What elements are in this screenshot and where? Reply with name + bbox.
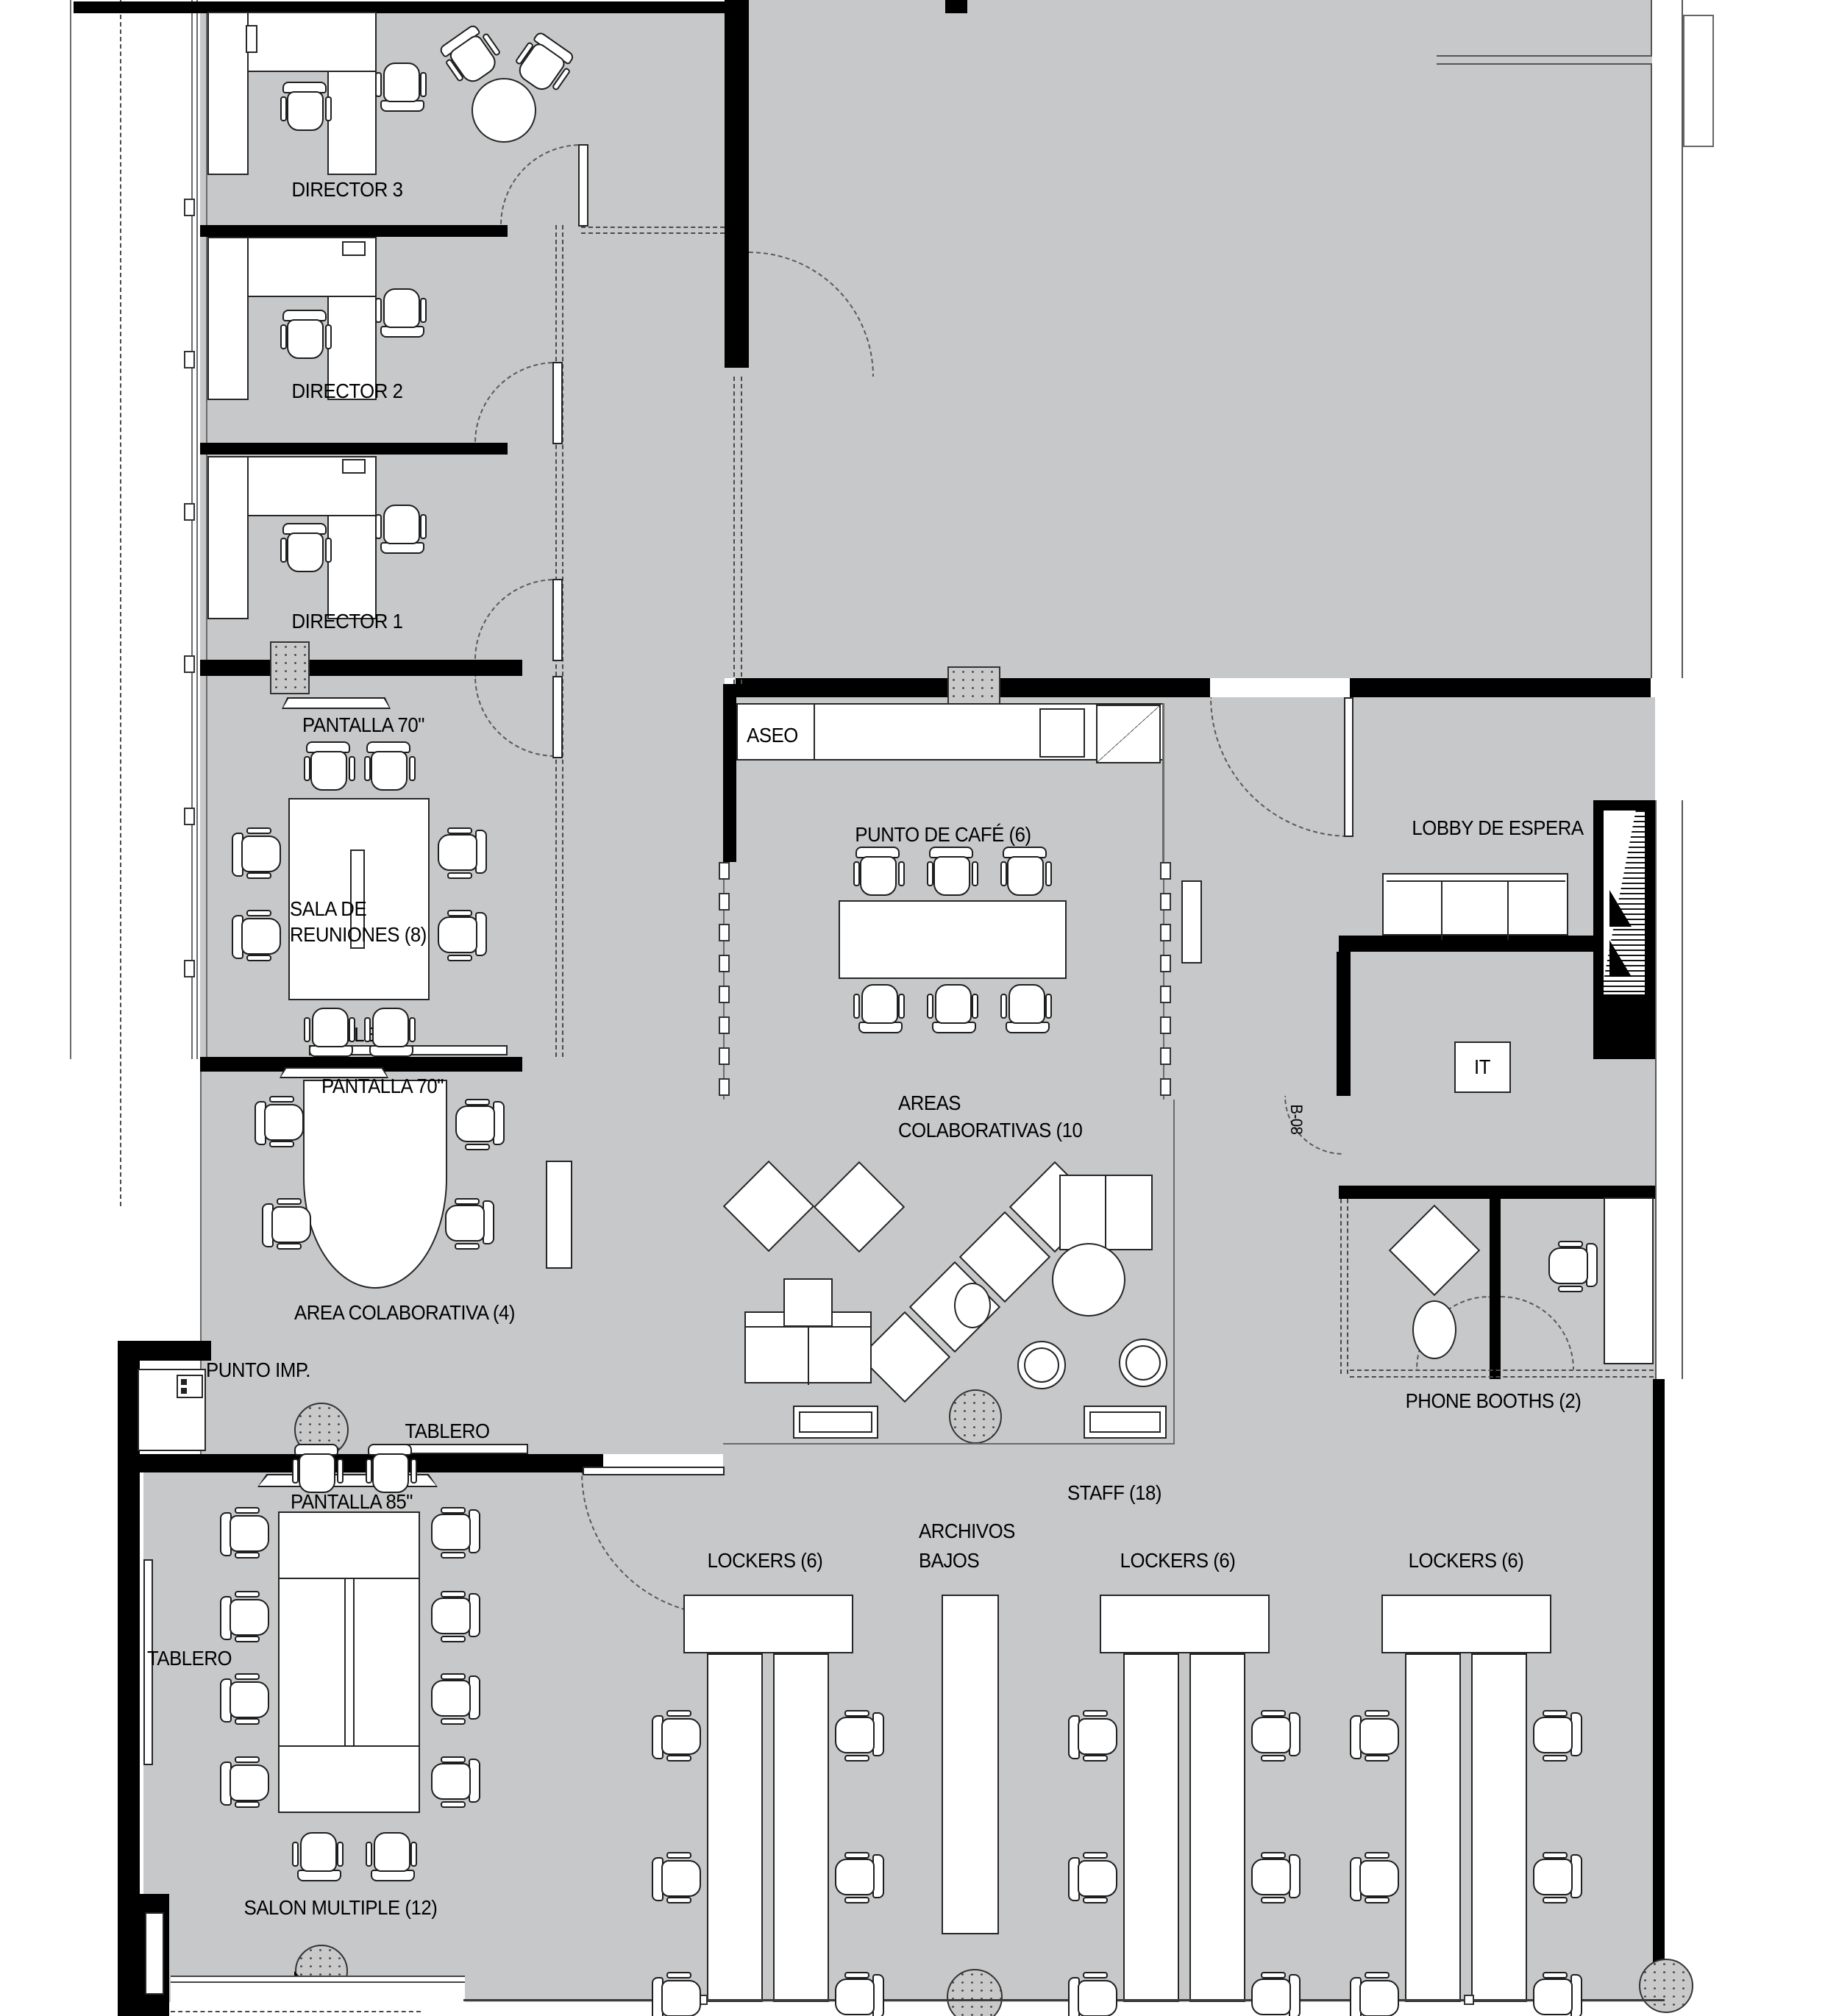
chair-arm-right <box>409 756 416 781</box>
chair-arm-left <box>1045 994 1052 1019</box>
chair-arm-right <box>349 756 355 781</box>
label-lobby: LOBBY DE ESPERA <box>1412 816 1583 840</box>
chair-seat <box>1533 1717 1573 1753</box>
slab-edge-south <box>463 1999 1665 2001</box>
chair-arm-right <box>325 96 332 121</box>
aseo-divider <box>814 705 815 759</box>
chair-seat <box>1251 1717 1291 1753</box>
chair-arm-right <box>927 994 933 1019</box>
chair-seat <box>383 63 420 102</box>
chair-seat <box>835 1978 875 2015</box>
desk-col-1b <box>773 1653 829 2002</box>
sofa-west-cushion-line <box>808 1326 809 1385</box>
label-areas-line1: AREAS <box>898 1091 961 1115</box>
bench-1-inner <box>799 1411 872 1433</box>
desk-col-3a <box>1405 1653 1461 2002</box>
chair-arm-left <box>366 1458 372 1483</box>
chair-seat <box>445 1205 485 1242</box>
chair-seat <box>1359 1980 1399 2016</box>
label-lockers-2: LOCKERS (6) <box>1120 1549 1236 1572</box>
chair-arm-right <box>235 1591 260 1598</box>
chair-seat <box>431 1763 471 1800</box>
chair-seat <box>1078 1860 1117 1897</box>
threshold-sw <box>171 1976 465 1983</box>
chair-seat <box>431 1680 471 1717</box>
office-chair-icon <box>377 57 425 112</box>
office-chair-icon <box>1350 1853 1404 1902</box>
chair-seat <box>438 834 477 871</box>
office-chair-icon <box>366 741 414 796</box>
chair-arm-left <box>1543 1852 1568 1859</box>
chair-arm-right <box>1365 1710 1390 1717</box>
floor-plan: B-08 DIRECTOR 3 DIRECTOR 2 DIRECTOR 1 PA… <box>0 0 1825 2016</box>
glass-d3-front <box>581 227 725 228</box>
window-mullion-tick <box>719 1078 730 1096</box>
office-chair-icon <box>1543 1242 1598 1291</box>
window-mullion-tick <box>719 862 730 880</box>
window-mullion-tick <box>1160 862 1171 880</box>
office-chair-icon <box>426 1509 480 1557</box>
chair-arm-right <box>441 1552 466 1559</box>
office-chair-icon <box>1002 847 1050 901</box>
door-leaf-director1 <box>552 579 563 661</box>
chair-arm-left <box>465 1099 490 1105</box>
monitor-director3-icon <box>246 25 257 53</box>
glass-corridor-east-a <box>733 377 735 684</box>
door-leaf-lobby-main <box>1344 697 1353 837</box>
stair-treads <box>1604 811 1645 994</box>
screen-70-sala <box>282 697 391 709</box>
office-chair-icon <box>450 1100 505 1149</box>
desk-director1-left <box>207 456 249 619</box>
office-chair-icon <box>855 979 903 1033</box>
chair-seat <box>661 1860 701 1897</box>
chair-arm-right <box>235 1756 260 1763</box>
chair-arm-left <box>441 1591 466 1598</box>
desk-col-3b <box>1471 1653 1527 2002</box>
sofa-lobby-backline <box>1387 880 1565 882</box>
office-chair-icon <box>928 847 977 901</box>
chair-arm-right <box>447 872 472 879</box>
ottoman-ring-2-inner <box>1125 1345 1161 1381</box>
office-chair-icon <box>830 1973 884 2016</box>
chair-arm-left <box>441 1756 466 1763</box>
chair-arm-left <box>1543 1972 1568 1978</box>
chair-arm-left <box>666 1897 691 1903</box>
chair-arm-right <box>441 1636 466 1642</box>
chair-seat <box>860 856 897 896</box>
chair-seat <box>372 1453 409 1493</box>
chair-arm-left <box>235 1636 260 1642</box>
office-chair-icon <box>1350 1973 1404 2016</box>
chair-seat <box>431 1514 471 1550</box>
chair-seat <box>455 1105 495 1142</box>
chair-seat <box>661 1980 701 2016</box>
label-lockers-3: LOCKERS (6) <box>1409 1549 1524 1572</box>
office-chair-icon <box>232 911 286 960</box>
chair-arm-left <box>1083 1755 1108 1762</box>
table-cafe <box>839 900 1067 979</box>
desk-director3-right <box>327 71 377 175</box>
ottoman-ring-1-inner <box>1024 1347 1059 1383</box>
window-mullion-tick <box>1160 1047 1171 1065</box>
chair-arm-right <box>246 827 271 834</box>
label-tablero-salon: TABLERO <box>147 1647 232 1670</box>
chair-arm-left <box>280 538 287 563</box>
office-chair-icon <box>1528 1712 1582 1760</box>
exterior-box-ne <box>1683 15 1714 147</box>
aseo-east-wall <box>1162 703 1164 862</box>
chair-arm-left <box>1365 1755 1390 1762</box>
chair-arm-right <box>666 1710 691 1717</box>
label-areas-line2: COLABORATIVAS (10 <box>898 1119 1082 1142</box>
window-mullion-tick <box>719 1016 730 1034</box>
chair-seat <box>230 1764 269 1801</box>
window-mullion-tick <box>719 893 730 911</box>
label-aseo: ASEO <box>747 724 798 747</box>
chair-arm-right <box>844 1755 869 1762</box>
door-leaf-director3 <box>578 144 588 227</box>
exterior-line-west <box>70 0 71 1059</box>
chair-seat <box>1533 1859 1573 1895</box>
chair-arm-left <box>364 756 371 781</box>
chair-arm-left <box>927 861 933 886</box>
office-chair-icon <box>262 1200 316 1248</box>
chair-arm-right <box>1543 1897 1568 1903</box>
chair-seat <box>835 1859 875 1895</box>
chair-seat <box>933 856 970 896</box>
window-mullion-tick <box>184 503 195 521</box>
chair-seat <box>287 533 324 572</box>
table-salon-line1 <box>280 1578 419 1579</box>
chair-arm-left <box>1000 861 1007 886</box>
desk-col-1a <box>707 1653 763 2002</box>
chair-arm-right <box>269 1096 294 1103</box>
desk-director3-left <box>207 12 249 175</box>
chair-arm-right <box>844 1897 869 1903</box>
door-leaf-area-colab <box>546 1161 572 1269</box>
office-chair-icon <box>1068 1853 1123 1902</box>
wall-east-low <box>1653 1379 1665 2002</box>
desk-col-2a <box>1123 1653 1179 2002</box>
chair-seat <box>383 288 420 328</box>
sw-window <box>145 1912 164 1995</box>
chair-arm-right <box>455 1243 480 1250</box>
sofa-lobby-line1 <box>1441 880 1442 940</box>
window-mullion-tick <box>184 199 195 216</box>
chair-arm-right <box>441 1801 466 1808</box>
chair-arm-left <box>420 72 427 97</box>
window-mullion-tick <box>184 960 195 977</box>
chair-seat <box>287 319 324 359</box>
wall-d1-sala <box>200 660 522 676</box>
chair-seat <box>300 1832 337 1872</box>
office-chair-icon <box>294 1827 342 1881</box>
window-mullion-tick <box>1160 1016 1171 1034</box>
chair-arm-left <box>898 994 905 1019</box>
office-chair-icon <box>1350 1712 1404 1760</box>
table-salon-divider-b <box>353 1579 355 1747</box>
printer-detail <box>181 1379 187 1385</box>
window-mullion-tick <box>1160 955 1171 972</box>
side-table-oval <box>954 1283 991 1328</box>
chair-arm-right <box>1083 1972 1108 1978</box>
table-salon <box>278 1511 420 1813</box>
chair-arm-left <box>1261 1710 1286 1717</box>
exterior-ledge <box>1437 55 1652 65</box>
office-chair-icon <box>830 1853 884 1902</box>
chair-arm-left <box>337 1842 344 1867</box>
chair-seat <box>835 1717 875 1753</box>
label-it: IT <box>1474 1055 1490 1079</box>
office-chair-icon <box>232 829 286 877</box>
chair-seat <box>383 505 420 544</box>
locker-bank-2 <box>1100 1595 1270 1653</box>
desk-booth2 <box>1604 1197 1654 1364</box>
office-chair-icon <box>282 523 330 577</box>
wall-lobby-L-h <box>1339 936 1604 952</box>
chair-arm-right <box>375 72 382 97</box>
glass-booth-south-a <box>1350 1369 1654 1371</box>
office-chair-icon <box>366 1002 414 1057</box>
chair-arm-right <box>375 514 382 539</box>
chair-seat <box>264 1104 304 1141</box>
glass-booth-south-b <box>1350 1376 1654 1378</box>
office-chair-icon <box>377 499 425 554</box>
label-lockers-1: LOCKERS (6) <box>708 1549 823 1572</box>
chair-arm-left <box>420 514 427 539</box>
chair-seat <box>230 1515 269 1552</box>
chair-seat <box>1359 1860 1399 1897</box>
window-mullion-tick <box>719 986 730 1003</box>
chair-arm-right <box>304 1017 310 1042</box>
chair-arm-left <box>447 910 472 916</box>
lounge-south-line <box>723 1443 1175 1445</box>
exterior-strip-east-mid <box>1655 800 1683 1379</box>
chair-arm-right <box>366 1842 372 1867</box>
table-salon-divider-a <box>344 1579 346 1747</box>
office-chair-icon <box>220 1509 274 1557</box>
chair-arm-left <box>666 1755 691 1762</box>
chair-arm-right <box>325 324 332 349</box>
chair-arm-left <box>280 324 287 349</box>
column-d1 <box>270 641 310 694</box>
window-mullion-tick <box>1160 1078 1171 1096</box>
label-staff: STAFF (18) <box>1067 1481 1161 1505</box>
chair-seat <box>1007 856 1044 896</box>
wall-lobby-L-v <box>1337 952 1351 1096</box>
chair-arm-right <box>1543 1755 1568 1762</box>
door-leaf-sala <box>552 676 563 758</box>
chair-arm-right <box>1261 1897 1286 1903</box>
wall-top-stub <box>945 0 967 13</box>
window-mullion-tick <box>1160 893 1171 911</box>
sofa-east-cushion-line <box>1105 1176 1106 1249</box>
office-chair-icon <box>830 1712 884 1760</box>
ottoman-ring-2 <box>1119 1339 1167 1387</box>
printer-icon <box>177 1375 203 1398</box>
office-chair-icon <box>652 1853 706 1902</box>
chair-arm-right <box>666 1852 691 1859</box>
chair-seat <box>312 1008 349 1047</box>
window-mullion-tick <box>719 1047 730 1065</box>
label-pantalla70-sala: PANTALLA 70" <box>302 713 424 737</box>
window-mullion-tick <box>184 655 195 673</box>
office-chair-icon <box>1528 1973 1582 2016</box>
chair-arm-right <box>1261 1755 1286 1762</box>
label-archivos-line2: BAJOS <box>919 1549 979 1572</box>
window-mullion-tick <box>184 351 195 368</box>
chair-arm-left <box>235 1718 260 1725</box>
label-archivos-line1: ARCHIVOS <box>919 1520 1015 1543</box>
wall-east-corridor <box>725 0 749 368</box>
chair-arm-right <box>292 1842 299 1867</box>
chair-arm-right <box>1045 861 1052 886</box>
label-punto-cafe: PUNTO DE CAFÉ (6) <box>855 823 1031 847</box>
chair-arm-left <box>269 1141 294 1147</box>
desk-director1-right <box>327 515 377 619</box>
chair-arm-right <box>337 1458 344 1483</box>
office-chair-icon <box>220 1675 274 1723</box>
bench-2-inner <box>1089 1411 1161 1433</box>
chair-arm-right <box>1365 1852 1390 1859</box>
office-chair-icon <box>433 911 487 960</box>
chair-seat <box>1359 1718 1399 1755</box>
aseo-shower <box>1096 705 1161 763</box>
chair-arm-right <box>1558 1286 1583 1292</box>
cafe-east-cabinet <box>1181 880 1202 964</box>
office-chair-icon <box>1068 1712 1123 1760</box>
office-chair-icon <box>652 1712 706 1760</box>
desk-director2-left <box>207 237 249 400</box>
label-punto-imp: PUNTO IMP. <box>206 1358 310 1382</box>
window-mullion-tick <box>719 924 730 941</box>
office-chair-icon <box>220 1592 274 1641</box>
office-chair-icon <box>652 1973 706 2016</box>
chair-arm-left <box>1558 1241 1583 1247</box>
chair-seat <box>371 751 408 791</box>
office-chair-icon <box>1246 1973 1301 2016</box>
label-director3: DIRECTOR 3 <box>292 178 403 202</box>
chair-arm-left <box>349 1017 355 1042</box>
label-sala-line1: SALA DE <box>290 897 366 921</box>
label-director1: DIRECTOR 1 <box>292 610 403 633</box>
chair-arm-right <box>441 1718 466 1725</box>
bench-1 <box>793 1406 878 1439</box>
office-chair-icon <box>305 1002 354 1057</box>
chair-arm-left <box>447 827 472 834</box>
office-chair-icon <box>426 1592 480 1641</box>
chair-arm-left <box>1083 1897 1108 1903</box>
sofa-lobby-line2 <box>1507 880 1509 940</box>
column-lounge <box>949 1389 1002 1444</box>
window-mullion-tick <box>1160 986 1171 1003</box>
office-chair-icon <box>433 829 487 877</box>
chair-arm-left <box>235 1801 260 1808</box>
office-chair-icon <box>1068 1973 1123 2016</box>
table-salon-line2 <box>280 1745 419 1747</box>
label-sala-line2: REUNIONES (8) <box>290 923 427 947</box>
office-chair-icon <box>1528 1853 1582 1902</box>
door-leaf-director2 <box>552 362 563 444</box>
glass-d3-front-b <box>581 232 725 234</box>
chair-arm-left <box>235 1552 260 1559</box>
glass-booth-west-a <box>1340 1199 1342 1374</box>
office-chair-icon <box>1246 1712 1301 1760</box>
chair-seat <box>299 1453 335 1493</box>
office-chair-icon <box>367 1827 416 1881</box>
chair-seat <box>1533 1978 1573 2015</box>
office-chair-icon <box>440 1200 494 1248</box>
chair-seat <box>438 916 477 953</box>
chair-arm-right <box>375 298 382 323</box>
office-chair-icon <box>367 1444 416 1498</box>
wall-main-center-b <box>1350 678 1651 697</box>
chair-arm-left <box>410 1842 417 1867</box>
chair-arm-left <box>1261 1972 1286 1978</box>
chair-seat <box>861 984 898 1024</box>
aseo-cabinet <box>1039 708 1085 758</box>
chair-arm-left <box>277 1243 302 1250</box>
desk-col-2b <box>1189 1653 1245 2002</box>
chair-seat <box>1078 1718 1117 1755</box>
chair-arm-right <box>1083 1852 1108 1859</box>
chair-seat <box>310 751 347 791</box>
chair-arm-right <box>235 1507 260 1514</box>
office-chair-icon <box>294 1444 342 1498</box>
office-chair-icon <box>928 979 977 1033</box>
chair-arm-left <box>844 1972 869 1978</box>
sofa-lounge-east <box>1059 1175 1153 1250</box>
chair-arm-right <box>666 1972 691 1978</box>
curtain-wall-west-b <box>196 0 198 1059</box>
chair-arm-right <box>447 955 472 961</box>
office-chair-icon <box>377 283 425 338</box>
label-director2: DIRECTOR 2 <box>292 380 403 403</box>
wall-top <box>74 1 749 13</box>
office-chair-icon <box>282 310 330 364</box>
label-area-colab: AREA COLABORATIVA (4) <box>294 1301 515 1325</box>
chair-seat <box>230 1599 269 1636</box>
exterior-strip-east-top <box>1651 0 1683 678</box>
locker-bank-1 <box>683 1595 853 1653</box>
chair-arm-right <box>465 1144 490 1150</box>
chair-arm-left <box>292 1458 299 1483</box>
column-east <box>1639 1959 1693 2013</box>
wall-d3-d2 <box>200 225 508 237</box>
chair-arm-left <box>441 1507 466 1514</box>
chair-arm-left <box>1365 1897 1390 1903</box>
chair-arm-left <box>844 1852 869 1859</box>
chair-seat <box>271 1206 311 1243</box>
chair-arm-right <box>1365 1972 1390 1978</box>
glass-booth-west-b <box>1347 1199 1348 1374</box>
office-chair-icon <box>426 1758 480 1806</box>
wall-d2-d1 <box>200 443 508 455</box>
chair-arm-right <box>235 1673 260 1680</box>
chair-seat <box>287 91 324 131</box>
chair-arm-right <box>277 1198 302 1205</box>
chair-arm-right <box>246 910 271 916</box>
curtain-wall-west-a <box>191 0 193 1059</box>
chair-seat <box>1251 1859 1291 1895</box>
chair-seat <box>241 836 281 872</box>
monitor-director2-icon <box>342 241 366 256</box>
office-chair-icon <box>1002 979 1050 1033</box>
chair-arm-left <box>972 994 978 1019</box>
label-pantalla70-area: PANTALLA 70" <box>321 1075 444 1098</box>
chair-arm-right <box>1000 994 1007 1019</box>
